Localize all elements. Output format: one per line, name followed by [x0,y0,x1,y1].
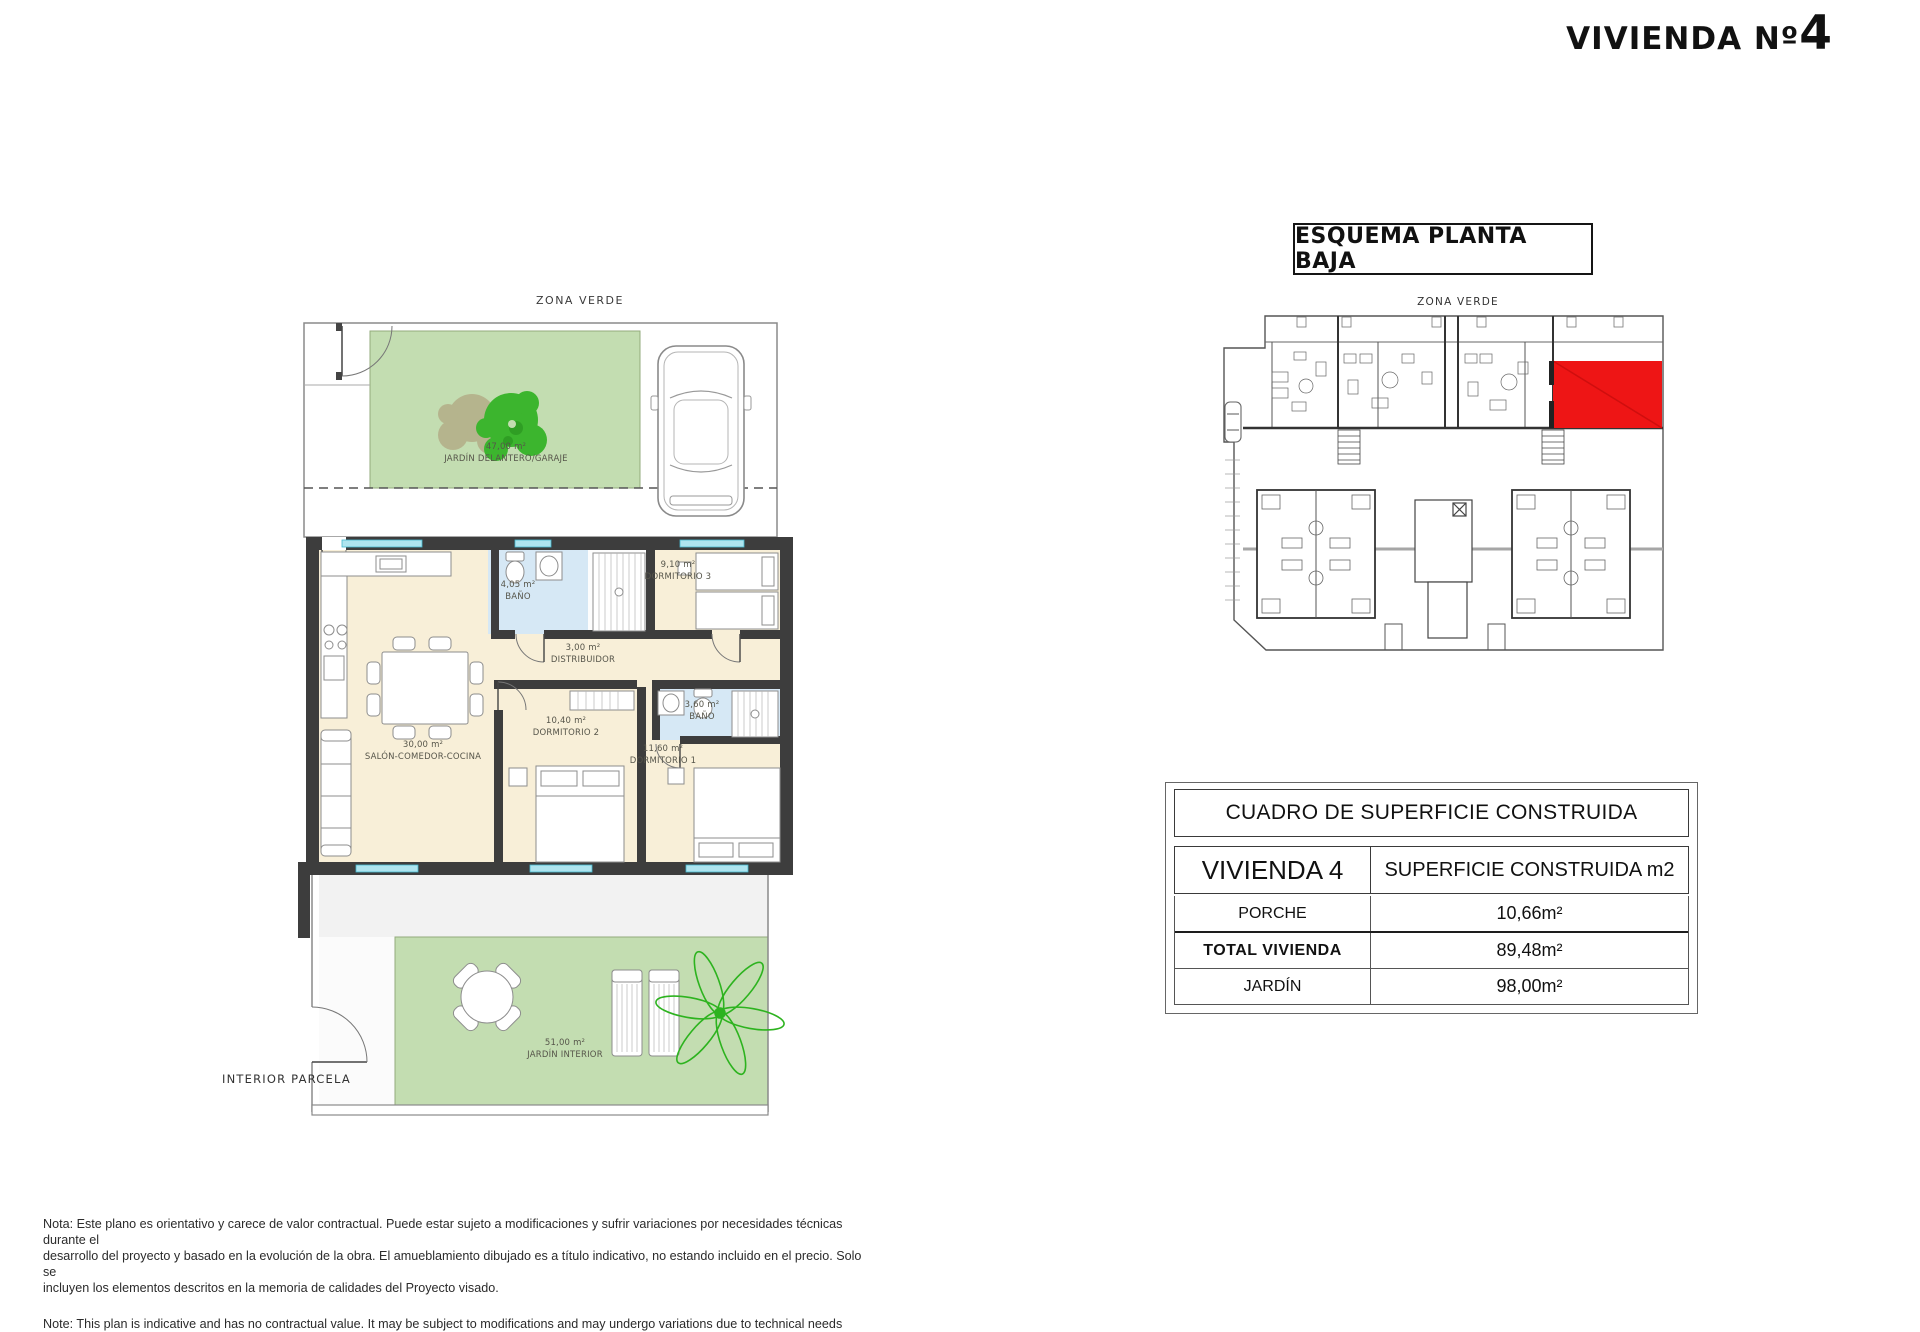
page-title-number: 4 [1799,6,1832,61]
table-row: PORCHE 10,66m² [1175,896,1688,931]
room-label-salon: 30,00 m² SALÓN-COMEDOR-COCINA [365,740,481,764]
surface-table: CUADRO DE SUPERFICIE CONSTRUIDA VIVIENDA… [1165,782,1698,1014]
main-floor-plan: ZONA VERDE [290,300,800,1130]
note-english: Note: This plan is indicative and has no… [43,1316,863,1332]
surface-table-rows: PORCHE 10,66m² TOTAL VIVIENDA 89,48m² JA… [1174,896,1689,1005]
table-row: JARDÍN 98,00m² [1175,968,1688,1004]
sofa [321,730,351,856]
plan-interior-parcela-label: INTERIOR PARCELA [222,1072,351,1086]
room-label-jardin-delantero: 47,00 m² JARDÍN DELANTERO/GARAJE [444,442,568,466]
esquema-planta-baja-label: ESQUEMA PLANTA BAJA [1293,223,1593,275]
highlighted-unit-4 [1549,361,1662,428]
room-label-distribuidor: 3,00 m² DISTRIBUIDOR [551,643,615,667]
surface-table-col1-header: VIVIENDA 4 [1175,847,1371,893]
room-label-bano-2: 3,60 m² BAÑO [685,700,720,724]
page-title-prefix: VIVIENDA Nº [1566,21,1799,57]
disclaimer-notes: Nota: Este plano es orientativo y carece… [43,1216,863,1332]
room-label-dormitorio-1: 11,60 m² DORMITORIO 1 [630,744,696,768]
site-lower-block [1257,490,1375,618]
room-label-bano-1: 4,05 m² BAÑO [501,580,536,604]
room-label-dormitorio-3: 9,10 m² DORMITORIO 3 [645,560,711,584]
esquema-title: ESQUEMA PLANTA BAJA [1295,224,1591,274]
car-icon [651,346,751,516]
dining-table [367,637,483,739]
table-row: TOTAL VIVIENDA 89,48m² [1175,931,1688,968]
surface-table-col2-header: SUPERFICIE CONSTRUIDA m2 [1371,847,1688,893]
note-spanish: Nota: Este plano es orientativo y carece… [43,1216,863,1296]
page-title: VIVIENDA Nº4 [1566,6,1832,61]
site-plan-drawing [1222,302,1694,662]
room-label-dormitorio-2: 10,40 m² DORMITORIO 2 [533,716,599,740]
site-car-icon [1225,402,1241,442]
site-key-plan: ZONA VERDE INTERIOR PARCELA [1222,302,1694,662]
surface-table-header: VIVIENDA 4 SUPERFICIE CONSTRUIDA m2 [1174,846,1689,894]
surface-table-title: CUADRO DE SUPERFICIE CONSTRUIDA [1174,789,1689,837]
room-label-jardin-interior: 51,00 m² JARDÍN INTERIOR [527,1038,603,1062]
floor-plan-drawing [290,300,800,1130]
